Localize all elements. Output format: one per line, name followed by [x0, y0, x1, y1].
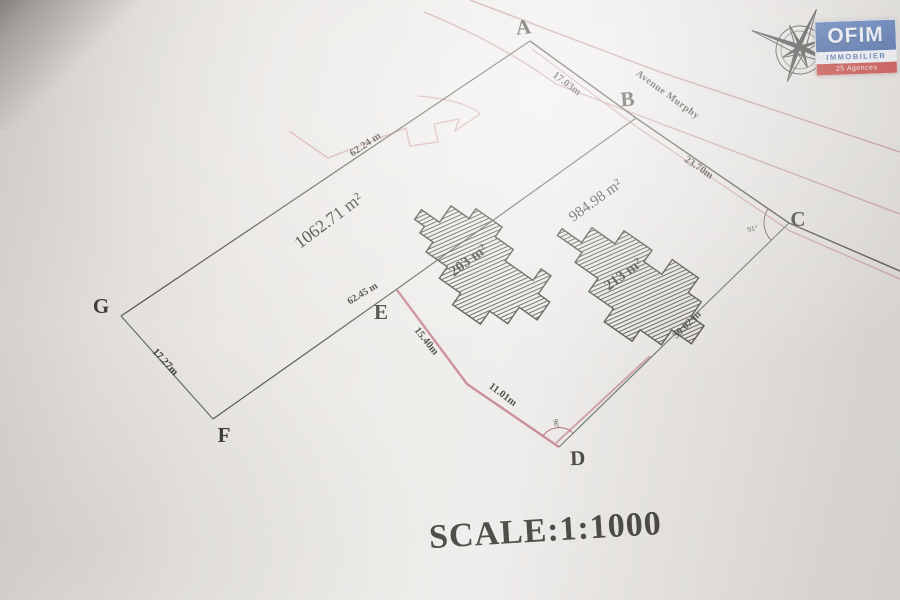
measurement-gf-label: 17.27m: [150, 347, 180, 378]
point-d-label: D: [570, 446, 586, 471]
point-g-label: G: [93, 294, 109, 318]
pink-line-d-toward-c: [556, 356, 650, 443]
building-west: [387, 183, 569, 349]
measurement-ag-label: 62.24 m: [348, 130, 383, 159]
angle-d-label: 96°: [551, 419, 560, 430]
plan-drawing: 91° 96° A B C D E F G 17.03m 23.70m 39.0…: [0, 0, 900, 600]
neighbour-parcel-outline: [289, 96, 480, 158]
photographed-site-plan: 91° 96° A B C D E F G 17.03m 23.70m 39.0…: [0, 0, 900, 600]
area-lot-west-label: 1062.71 m²: [290, 188, 366, 252]
division-line-bef: [213, 118, 636, 419]
measurement-xd-label: 11.01m: [486, 381, 518, 409]
logo-brand: OFIM: [814, 19, 897, 53]
point-f-label: F: [218, 423, 231, 447]
ofim-logo: OFIM IMMOBILIER 25 Agences: [814, 19, 898, 77]
building-east-footprint: [532, 198, 725, 370]
point-a-label: A: [514, 14, 532, 40]
street-name-label: Avenue Murphy: [633, 68, 701, 122]
angle-c-label: 91°: [746, 223, 758, 234]
point-e-label: E: [374, 300, 388, 324]
building-west-footprint: [387, 183, 569, 349]
measurement-bc-label: 23.70m: [682, 154, 715, 181]
scale-label: SCALE:1:1000: [428, 505, 663, 556]
area-lot-east-label: 984.98 m²: [566, 176, 625, 225]
parcel-boundaries: [121, 41, 900, 447]
building-east: [532, 198, 725, 370]
point-b-label: B: [620, 87, 636, 112]
point-c-label: C: [790, 207, 805, 231]
